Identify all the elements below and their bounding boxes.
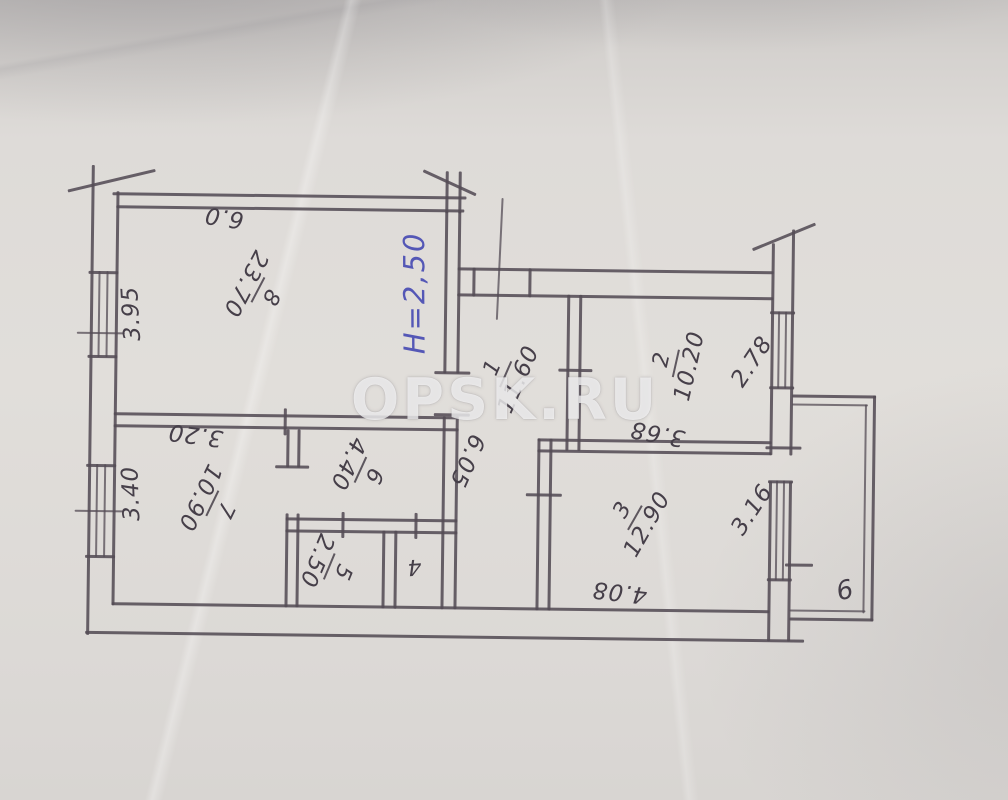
balcony-bottom-inner xyxy=(789,610,865,613)
window-room8-pane-a xyxy=(97,271,100,357)
balcony-bottom-outer xyxy=(789,618,873,622)
wall-break-cap-top-mid xyxy=(423,169,477,196)
room-8-label: 8 23.70 xyxy=(218,247,296,333)
room-2-area: 10.20 xyxy=(669,329,709,404)
vent-tick-b xyxy=(528,268,531,297)
window-room2-pane-a xyxy=(777,311,780,388)
balcony-9-label: 9 xyxy=(832,573,855,603)
dim-room8-top-width: 6.0 xyxy=(203,202,246,231)
wall-6-5-bottom xyxy=(285,529,457,534)
dim-room7-left-depth: 3.40 xyxy=(119,465,144,521)
wall-left-inner xyxy=(111,191,119,605)
tick-right-wall-junction xyxy=(765,446,801,449)
balcony-top-outer xyxy=(792,395,876,399)
window-room2-cap-top xyxy=(770,311,795,314)
window-room8-cap-bottom xyxy=(87,355,117,358)
wall-stub-b xyxy=(458,171,462,213)
wall-5-4-a xyxy=(381,531,385,609)
balcony-right-inner xyxy=(862,404,867,613)
wall-5-4-b xyxy=(393,531,397,609)
wall-3-left-a xyxy=(535,438,540,610)
wall-7-right-b1 xyxy=(284,513,288,607)
window-room7-mid-tick xyxy=(75,510,123,513)
watermark-text: OPSK.RU xyxy=(351,367,659,433)
dim-room7-top-width: 3.20 xyxy=(167,419,225,449)
wall-7-right-a1 xyxy=(286,429,289,467)
wall-topright-outer xyxy=(458,267,774,274)
wall-7-right-b2 xyxy=(295,513,299,607)
wall-6-5-top xyxy=(286,517,458,522)
window-room3-cap-top xyxy=(768,480,793,483)
wall-7-right-a2 xyxy=(297,429,300,467)
wall-right-outer-upper xyxy=(789,230,795,456)
door-tick-6-5-a xyxy=(341,512,344,538)
section-line xyxy=(496,198,504,320)
room-4-label: 4 xyxy=(406,554,422,577)
wall-topright-inner xyxy=(457,293,773,300)
wall-break-cap-top-left xyxy=(68,169,156,193)
door-tick-room7 xyxy=(275,465,309,468)
dim-room8-left-depth: 3.95 xyxy=(119,285,145,341)
window-room7-cap-bottom xyxy=(85,555,115,558)
wall-corridor-lower-a xyxy=(440,416,445,609)
photo-paper-background: 6.0 3.95 3.20 3.40 6.05 3.68 2.78 3.16 4… xyxy=(0,0,1008,800)
wall-top-outer xyxy=(112,192,466,199)
balcony-top-inner xyxy=(792,404,868,407)
wall-top-inner xyxy=(116,205,464,212)
room-6-label: 6 4.40 xyxy=(325,434,394,505)
room-3-label: 3 12.90 xyxy=(596,474,675,561)
wall-break-cap-top-right xyxy=(752,223,816,252)
wall-corridor-upper-a xyxy=(443,211,448,373)
room-7-label: 7 10.90 xyxy=(173,460,250,546)
wall-stub-a xyxy=(445,171,449,213)
wall-left-outer xyxy=(86,165,95,635)
door-tick-room3 xyxy=(526,493,562,496)
window-room2-cap-bottom xyxy=(769,386,794,389)
window-room3-cap-bottom xyxy=(767,578,792,581)
balcony-right-outer xyxy=(870,396,876,622)
door-tick-6-5-b xyxy=(414,513,417,539)
room-5-label: 5 2.50 xyxy=(295,531,363,602)
dim-corridor-length: 6.05 xyxy=(445,431,488,491)
window-room8-cap-top xyxy=(89,271,119,274)
window-room7-cap-top xyxy=(86,464,116,467)
window-room8-mid-tick xyxy=(77,332,125,335)
wall-bottom-outer xyxy=(85,631,804,643)
vent-tick-a xyxy=(472,268,475,297)
balcony-door-tick xyxy=(785,563,813,566)
wall-12-3-bottom xyxy=(537,449,771,455)
wall-3-left-b xyxy=(547,439,552,611)
ceiling-height-note: H=2,50 xyxy=(397,231,432,354)
dim-room3-bottom-width: 4.08 xyxy=(591,577,649,606)
window-room8-pane-b xyxy=(105,271,108,357)
window-room2-pane-b xyxy=(784,311,787,388)
